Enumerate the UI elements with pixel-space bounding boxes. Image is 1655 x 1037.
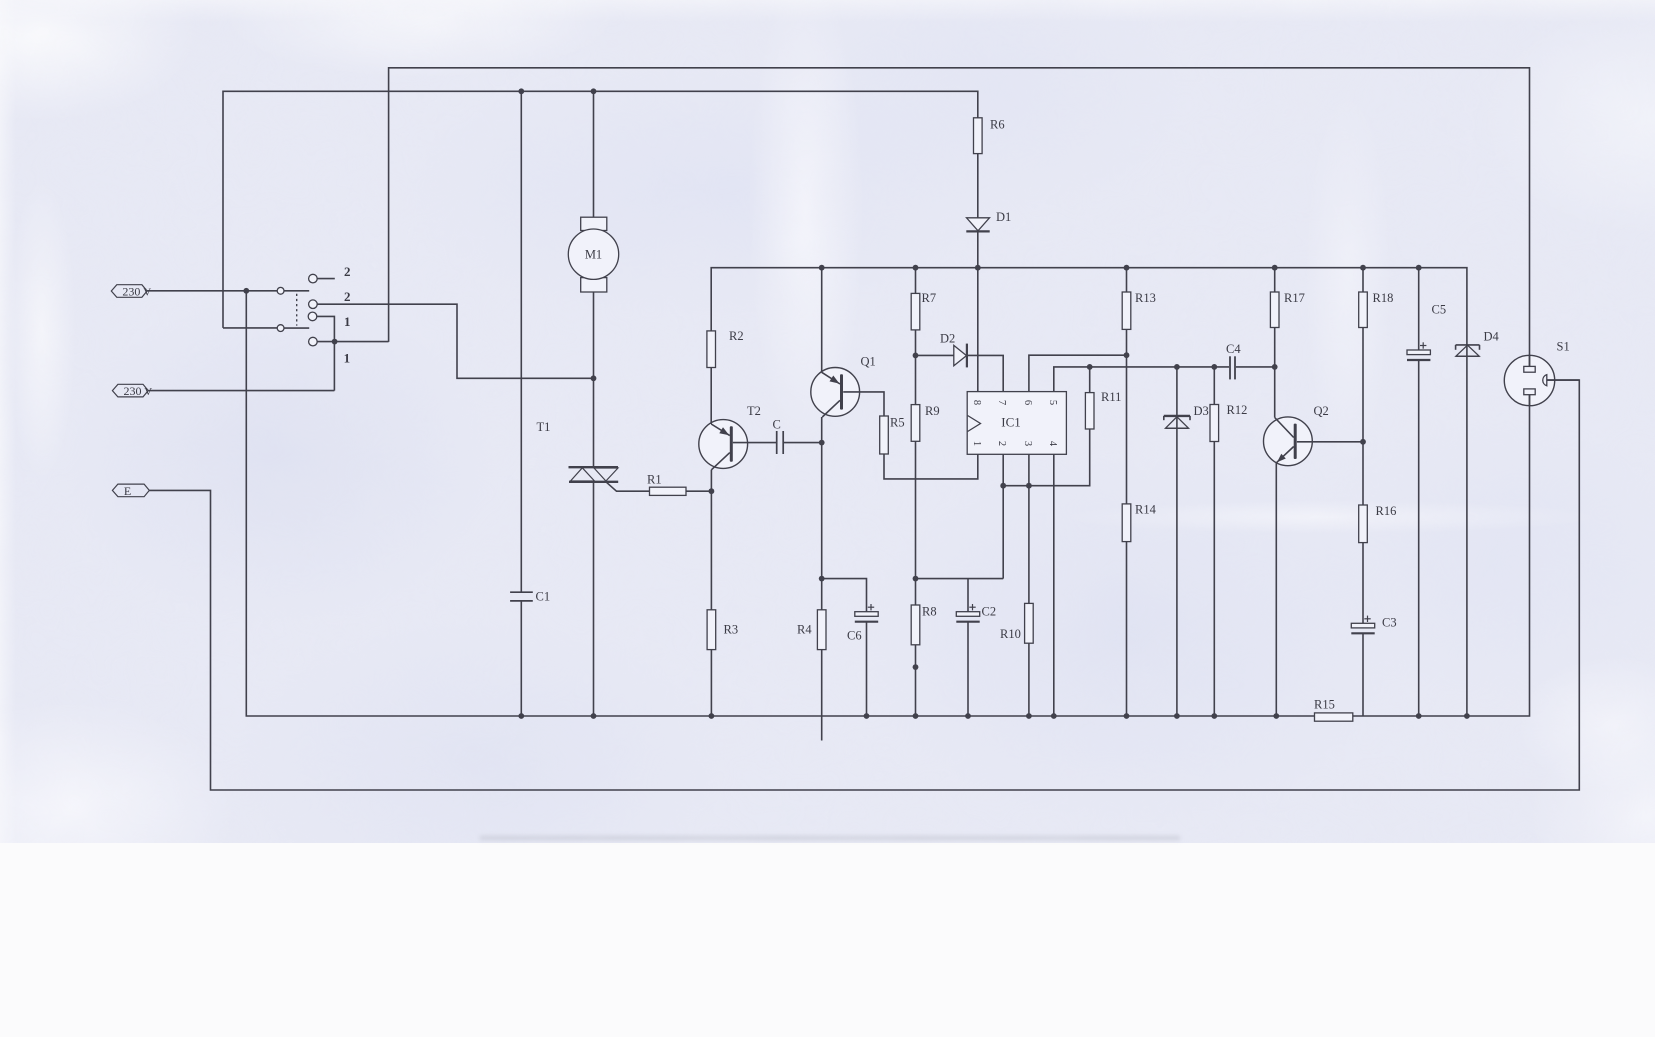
svg-text:3: 3 (1022, 441, 1033, 446)
svg-text:C5: C5 (1432, 302, 1447, 316)
svg-text:R6: R6 (990, 117, 1005, 131)
svg-text:R1: R1 (647, 473, 662, 487)
svg-text:R11: R11 (1101, 390, 1121, 404)
svg-text:2: 2 (996, 441, 1007, 446)
svg-text:R7: R7 (922, 291, 937, 305)
svg-text:T1: T1 (537, 420, 551, 434)
svg-text:230: 230 (124, 384, 142, 398)
svg-text:R14: R14 (1135, 502, 1157, 516)
svg-text:C6: C6 (847, 628, 862, 642)
svg-text:V: V (143, 286, 151, 298)
svg-text:D2: D2 (940, 331, 955, 345)
svg-text:1: 1 (344, 351, 351, 366)
svg-text:8: 8 (971, 400, 982, 405)
svg-text:IC1: IC1 (1001, 414, 1021, 429)
svg-text:1: 1 (971, 441, 982, 446)
svg-text:R10: R10 (1000, 627, 1021, 641)
svg-text:R2: R2 (729, 329, 744, 343)
svg-text:R9: R9 (925, 404, 940, 418)
svg-text:5: 5 (1047, 400, 1058, 405)
svg-text:C2: C2 (982, 604, 997, 618)
svg-text:R12: R12 (1227, 403, 1248, 417)
svg-text:230: 230 (122, 284, 140, 298)
svg-text:M1: M1 (585, 247, 602, 261)
svg-text:R16: R16 (1376, 504, 1397, 518)
svg-text:Q2: Q2 (1314, 404, 1329, 418)
svg-text:R15: R15 (1314, 698, 1335, 712)
svg-text:D4: D4 (1484, 329, 1500, 343)
svg-text:4: 4 (1047, 441, 1058, 447)
svg-text:7: 7 (996, 400, 1007, 405)
svg-text:T2: T2 (747, 404, 761, 418)
svg-text:R17: R17 (1284, 291, 1305, 305)
svg-text:2: 2 (344, 264, 351, 279)
svg-text:D3: D3 (1194, 404, 1209, 418)
svg-text:C4: C4 (1226, 342, 1241, 356)
svg-text:D1: D1 (996, 210, 1011, 224)
svg-text:R18: R18 (1373, 291, 1394, 305)
svg-text:C1: C1 (536, 590, 551, 604)
svg-text:R5: R5 (890, 415, 905, 429)
svg-text:Q1: Q1 (861, 354, 876, 368)
svg-text:1: 1 (344, 314, 351, 329)
svg-text:2: 2 (344, 289, 351, 304)
svg-text:C: C (773, 417, 781, 431)
svg-text:S1: S1 (1557, 340, 1570, 354)
svg-text:6: 6 (1022, 400, 1033, 405)
svg-text:R8: R8 (922, 604, 937, 618)
svg-text:V: V (144, 386, 152, 398)
svg-text:E: E (124, 484, 131, 498)
svg-text:R4: R4 (797, 622, 812, 636)
svg-text:R13: R13 (1135, 291, 1156, 305)
svg-text:R3: R3 (724, 622, 739, 636)
svg-text:C3: C3 (1382, 615, 1397, 629)
